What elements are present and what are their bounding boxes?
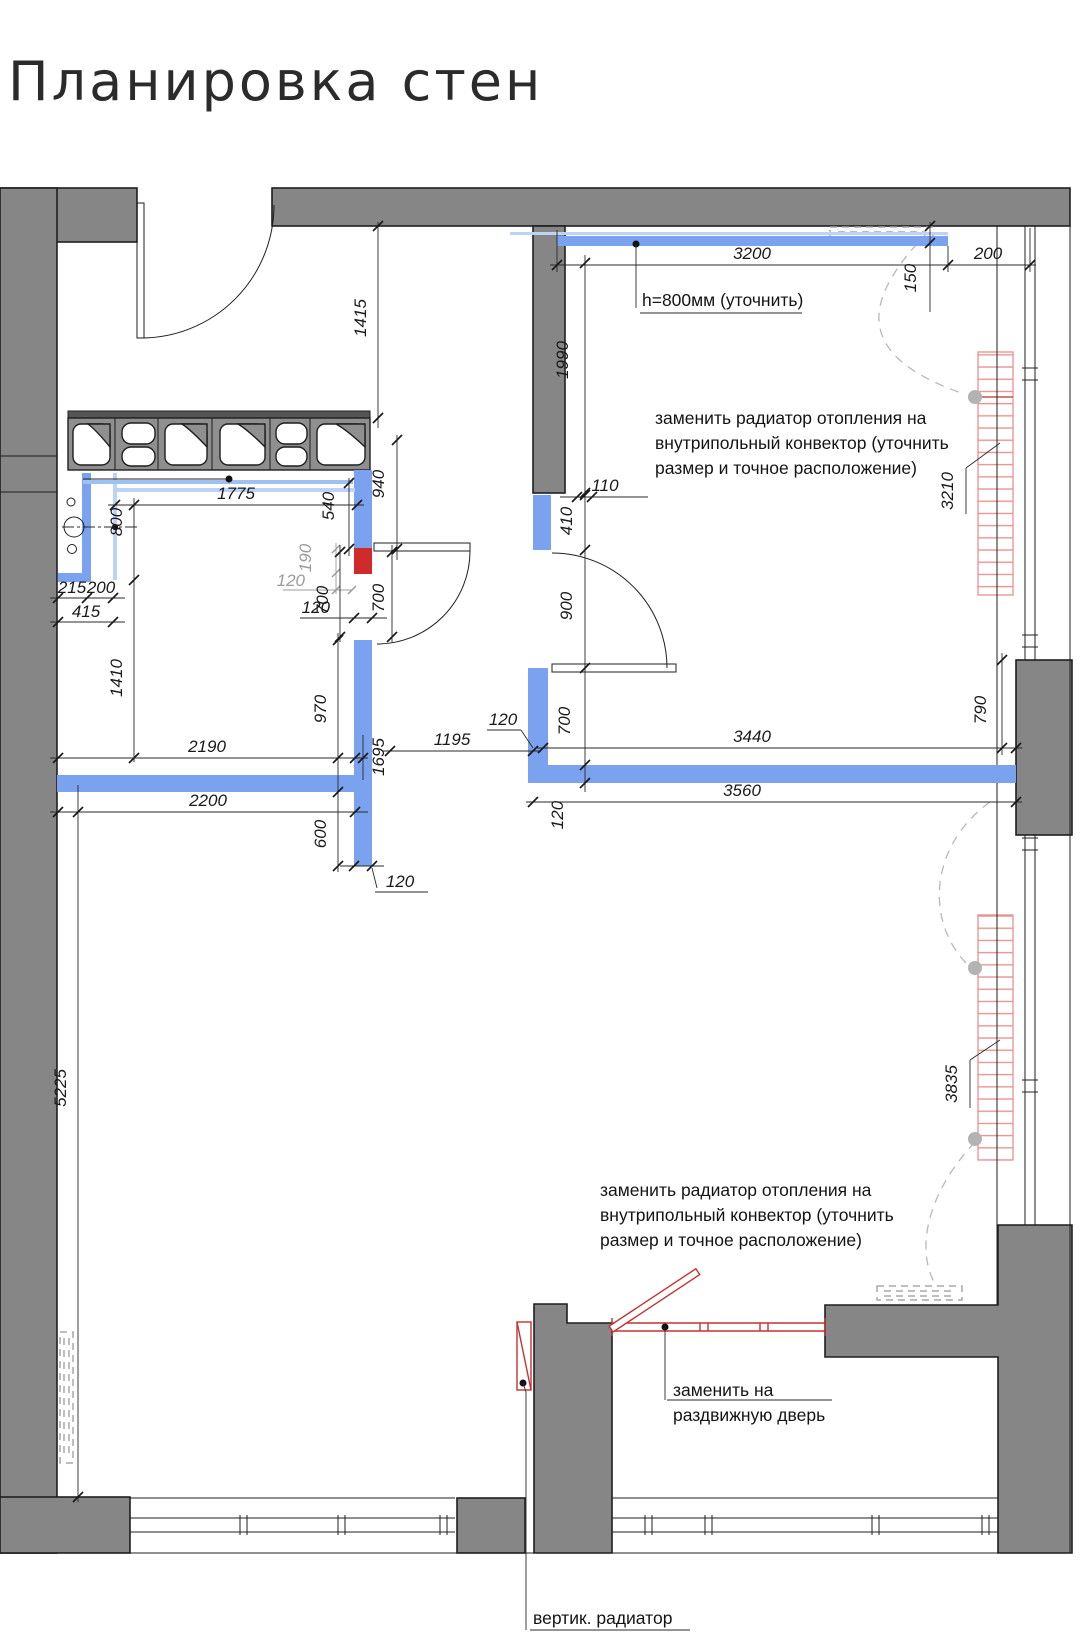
dim-120-bottom: 120 xyxy=(386,872,415,891)
svg-text:внутрипольный конвектор (уточн: внутрипольный конвектор (уточнить xyxy=(655,433,949,453)
dim-1990: 1990 xyxy=(553,341,572,379)
new-wall-long-horizontal xyxy=(528,765,1016,783)
dim-2190: 2190 xyxy=(187,737,226,756)
dashed-radiator-left xyxy=(60,1332,73,1463)
svg-text:раздвижную дверь: раздвижную дверь xyxy=(673,1405,825,1425)
svg-text:внутрипольный конвектор (уточн: внутрипольный конвектор (уточнить xyxy=(600,1205,894,1225)
dim-600: 600 xyxy=(311,819,330,848)
dim-120-room: 120 xyxy=(548,800,567,829)
dim-940: 940 xyxy=(369,469,388,498)
wall-bottom-pier xyxy=(457,1498,525,1553)
entrance-door xyxy=(137,203,274,338)
dim-3440: 3440 xyxy=(733,727,771,746)
dim-1415: 1415 xyxy=(351,299,370,337)
wall-center-bottom-pier xyxy=(534,1304,612,1553)
new-wall-under-stem xyxy=(533,495,551,550)
dashed-swing-arcs xyxy=(879,232,990,1284)
wall-bottom-left-pier xyxy=(0,1497,130,1553)
sliding-door xyxy=(609,1269,825,1336)
dim-3560: 3560 xyxy=(723,781,761,800)
dim-900: 900 xyxy=(557,591,576,620)
dim-190: 190 xyxy=(296,543,315,572)
dim-1775: 1775 xyxy=(217,484,255,503)
wall-top xyxy=(272,188,1070,226)
dim-120-leader: 120 xyxy=(489,710,518,729)
dim-1410: 1410 xyxy=(107,659,126,697)
dim-120-mid: 120 xyxy=(302,598,331,617)
dim-200-k: 200 xyxy=(86,578,116,597)
dim-120-gray: 120 xyxy=(277,571,306,590)
dim-1195: 1195 xyxy=(434,730,471,749)
dim-3835: 3835 xyxy=(942,1065,961,1103)
floor-plan-page: Планировка стен xyxy=(0,0,1080,1650)
radiator-bottom-right xyxy=(978,915,1013,1160)
dim-970: 970 xyxy=(311,694,330,723)
dim-2200: 2200 xyxy=(188,791,227,810)
page-title: Планировка стен xyxy=(8,50,543,113)
dim-110: 110 xyxy=(591,476,619,495)
svg-text:размер и точное расположение): размер и точное расположение) xyxy=(655,458,917,478)
vert-radiator-text: вертик. радиатор xyxy=(533,1608,672,1628)
height-note-text: h=800мм (уточнить) xyxy=(642,290,803,310)
dim-700-right: 700 xyxy=(369,583,388,612)
sliding-door-note: заменить на раздвижную дверь xyxy=(662,1324,833,1426)
floor-plan-drawing: Планировка стен xyxy=(0,0,1080,1650)
dim-215: 215 xyxy=(57,578,87,597)
svg-text:заменить на: заменить на xyxy=(673,1380,774,1400)
interior-door-kitchen xyxy=(374,543,470,644)
dim-800: 800 xyxy=(107,507,126,536)
convector-note-bottom: заменить радиатор отопления на внутрипол… xyxy=(600,1180,894,1250)
dim-410: 410 xyxy=(557,506,576,535)
dim-200-top: 200 xyxy=(973,244,1003,263)
dim-3210: 3210 xyxy=(938,472,957,510)
radiators xyxy=(978,352,1013,1160)
wall-left xyxy=(0,188,57,1553)
new-wall-kitchen-horizontal xyxy=(57,775,372,792)
dim-150: 150 xyxy=(901,263,920,292)
svg-text:заменить радиатор отопления на: заменить радиатор отопления на xyxy=(600,1180,872,1200)
dashed-radiator-bottom xyxy=(877,1286,962,1300)
new-wall-duct xyxy=(82,473,91,580)
height-note: h=800мм (уточнить) xyxy=(633,241,804,314)
dim-1695: 1695 xyxy=(369,738,388,776)
bearing-walls xyxy=(0,188,1072,1553)
dim-5225: 5225 xyxy=(51,1069,70,1107)
dim-700-room: 700 xyxy=(555,706,574,735)
dim-790: 790 xyxy=(971,695,990,724)
dim-415: 415 xyxy=(72,602,101,621)
wall-right-pier xyxy=(1016,660,1072,835)
svg-text:размер и точное расположение): размер и точное расположение) xyxy=(600,1230,862,1250)
convector-note-top: заменить радиатор отопления на внутрипол… xyxy=(655,408,949,478)
wall-bottom-right-tee xyxy=(825,1225,1072,1553)
dim-540: 540 xyxy=(319,491,338,520)
red-wall-block xyxy=(354,548,372,574)
dim-3200: 3200 xyxy=(733,244,771,263)
vent-blocks xyxy=(68,411,370,470)
svg-text:заменить радиатор отопления на: заменить радиатор отопления на xyxy=(655,408,927,428)
radiator-top-right xyxy=(978,352,1013,595)
